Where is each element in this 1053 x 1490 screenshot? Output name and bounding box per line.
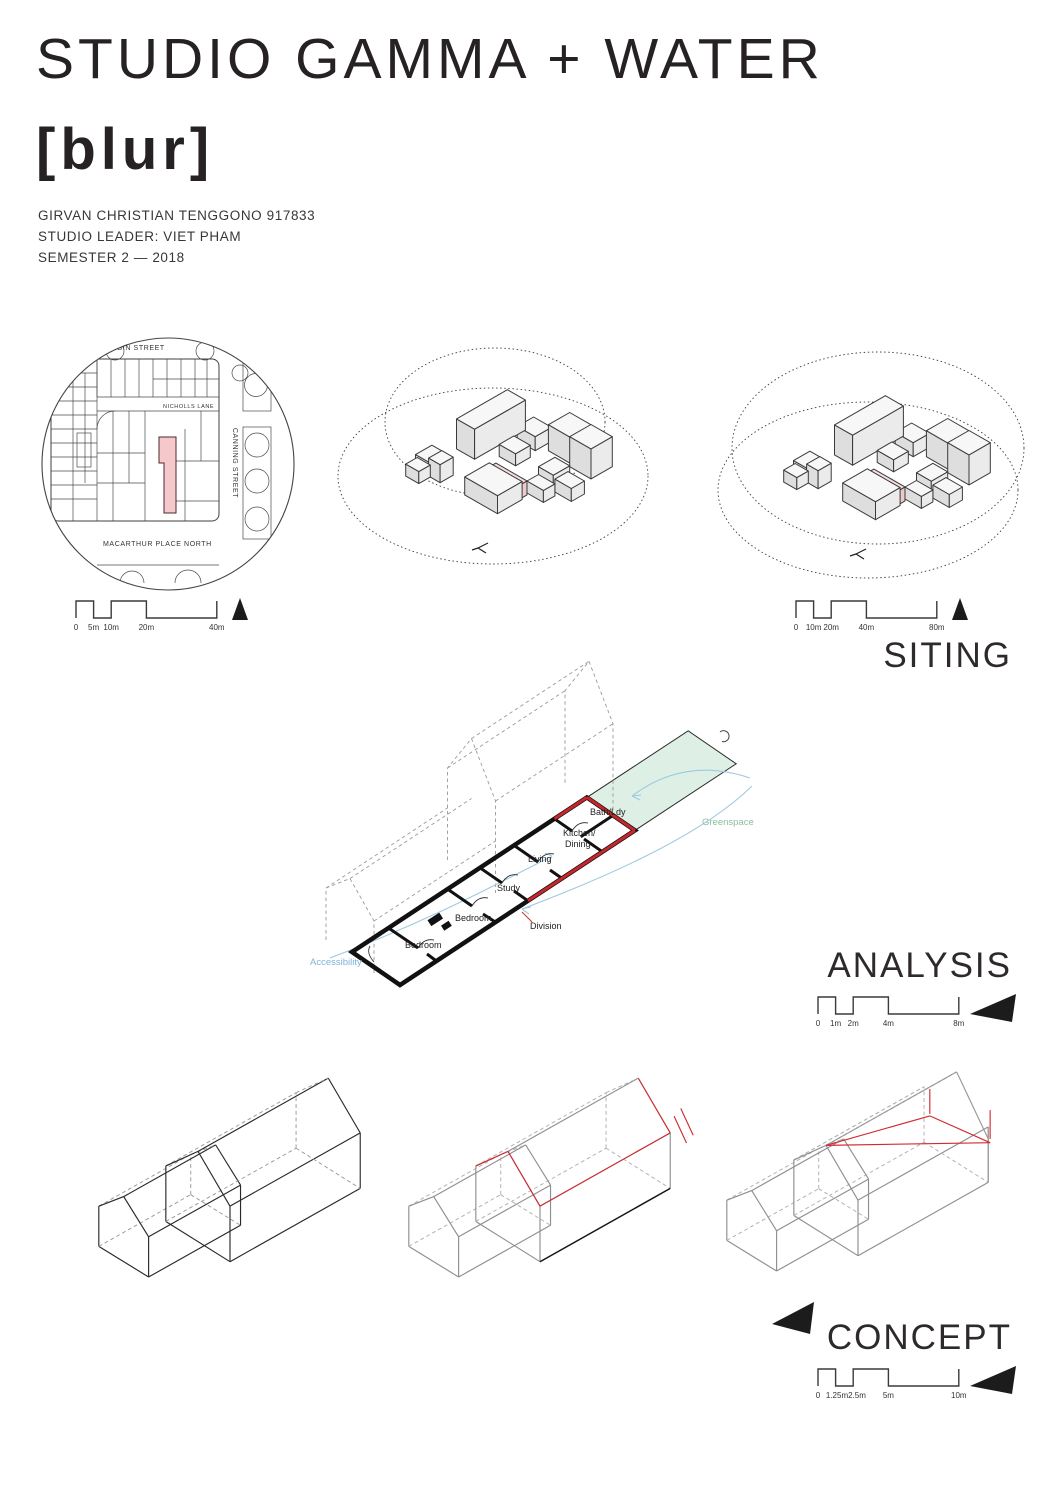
scale-tick: 1m (830, 1019, 841, 1028)
scale-tick: 0 (816, 1019, 821, 1028)
scale-tick: 8m (953, 1019, 964, 1028)
scale-bar-site-plan: 0 5m 10m 20m 40m (68, 594, 268, 636)
north-arrow-icon (850, 549, 866, 559)
scale-tick: 0 (816, 1391, 821, 1400)
concept-diagram-2 (382, 1052, 698, 1322)
student-name: GIRVAN CHRISTIAN TENGGONO 917833 (38, 206, 315, 227)
scale-tick: 40m (209, 623, 225, 632)
scale-tick: 10m (806, 623, 822, 632)
concept-diagram-1 (72, 1052, 388, 1322)
scale-tick: 4m (883, 1019, 894, 1028)
scale-bar-concept: 0 1.25m 2.5m 5m 10m (810, 1360, 1022, 1406)
direction-arrow-icon (970, 994, 1016, 1022)
scale-tick: 40m (859, 623, 875, 632)
scale-tick: 1.25m (826, 1391, 849, 1400)
street-bottom-label: MACARTHUR PLACE NORTH (103, 541, 212, 548)
room-label-bedroom-small: Bedroom (405, 940, 442, 950)
scale-bar-siting: 0 10m 20m 40m 80m (788, 594, 988, 636)
division-leader-line (522, 912, 532, 922)
north-arrow-icon (472, 543, 488, 553)
siting-axonometric-context (706, 336, 1046, 602)
heading-analysis: ANALYSIS (827, 946, 1012, 986)
analysis-isometric-plan: Bath/Ldy Kitchen/ Dining Living Study Be… (300, 660, 810, 1010)
scale-tick: 20m (139, 623, 155, 632)
siting-axonometric-existing (328, 336, 668, 594)
room-label-bedroom-large: Bedroom (455, 913, 492, 923)
scale-tick: 0 (794, 623, 799, 632)
presentation-page: { "header": { "title": "STUDIO GAMMA + W… (0, 0, 1053, 1490)
street-right-label: CANNING STREET (231, 428, 238, 498)
direction-arrow-icon (970, 1366, 1016, 1394)
studio-leader: STUDIO LEADER: VIET PHAM (38, 227, 315, 248)
concept-diagram-3 (700, 1046, 1016, 1316)
heading-siting: SITING (883, 636, 1012, 676)
scale-bar-analysis: 0 1m 2m 4m 8m (810, 988, 1022, 1034)
north-arrow-icon (232, 598, 248, 620)
scale-tick: 10m (951, 1391, 967, 1400)
lane-label: NICHOLLS LANE (163, 404, 214, 410)
scale-tick: 0 (74, 623, 79, 632)
north-arrow-icon (952, 598, 968, 620)
scale-tick: 80m (929, 623, 945, 632)
scale-tick: 20m (823, 623, 839, 632)
greenspace-label: Greenspace (702, 817, 754, 828)
room-label-bath: Bath/Ldy (590, 807, 626, 817)
site-plan-map: ELGIN STREET NICHOLLS LANE MACARTHUR PLA… (37, 333, 299, 599)
greenspace-end-curl (720, 731, 729, 742)
scale-tick: 10m (103, 623, 119, 632)
scale-tick: 2.5m (848, 1391, 866, 1400)
project-info: GIRVAN CHRISTIAN TENGGONO 917833 STUDIO … (38, 206, 315, 269)
room-label-kitchen: Kitchen/ (563, 828, 596, 838)
street-top-label: ELGIN STREET (107, 345, 165, 352)
accessibility-label: Accessibility (310, 957, 362, 968)
scale-tick: 2m (848, 1019, 859, 1028)
house-floor (352, 797, 635, 985)
page-title: STUDIO GAMMA + WATER (36, 26, 824, 92)
heading-concept: CONCEPT (827, 1318, 1012, 1358)
scale-tick: 5m (883, 1391, 894, 1400)
scale-tick: 5m (88, 623, 99, 632)
room-label-dining: Dining (565, 839, 591, 849)
room-label-study: Study (497, 883, 521, 893)
page-subtitle: [blur] (36, 116, 214, 183)
semester: SEMESTER 2 — 2018 (38, 248, 315, 269)
room-label-living: Living (528, 854, 552, 864)
division-label: Division (530, 921, 562, 931)
direction-arrow-icon (766, 1300, 818, 1338)
